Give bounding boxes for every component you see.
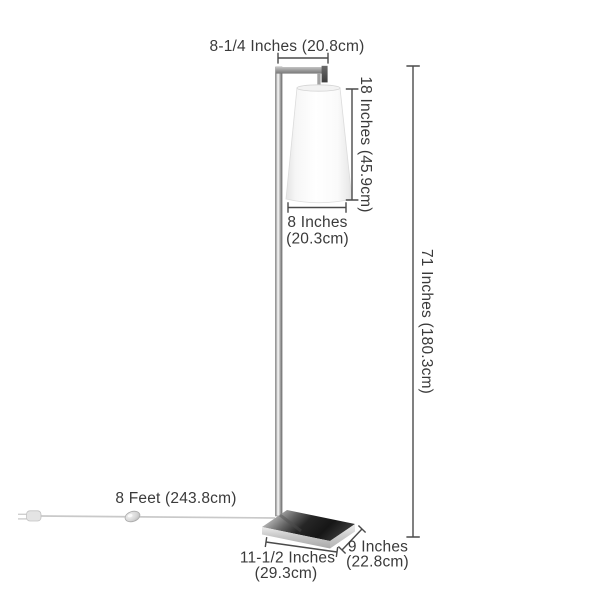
product-dimensions-diagram: 8-1/4 Inches (20.8cm) 18 Inches (45.9cm)… bbox=[0, 0, 600, 600]
label-base-depth-line2: (22.8cm) bbox=[346, 554, 409, 571]
lamp-shade bbox=[286, 85, 352, 203]
lamp-pole bbox=[276, 67, 283, 516]
power-plug bbox=[18, 511, 41, 521]
lamp-arm bbox=[276, 67, 328, 74]
dim-total-height bbox=[406, 66, 419, 537]
shade-top-rim bbox=[297, 85, 340, 91]
dim-shade-width bbox=[288, 202, 346, 213]
dimension-labels: 8-1/4 Inches (20.8cm) 18 Inches (45.9cm)… bbox=[115, 38, 435, 582]
label-base-width-line1: 11-1/2 Inches bbox=[240, 550, 335, 567]
label-total-height: 71 Inches (180.3cm) bbox=[418, 249, 435, 394]
label-shade-width-line2: (20.3cm) bbox=[286, 231, 349, 248]
label-base-width-line2: (29.3cm) bbox=[255, 565, 318, 582]
label-cord-length: 8 Feet (243.8cm) bbox=[115, 490, 236, 507]
label-shade-height: 18 Inches (45.9cm) bbox=[357, 76, 374, 212]
floor-lamp-illustration bbox=[18, 66, 355, 549]
lamp-arm-endcap bbox=[322, 66, 328, 83]
cord-inline-switch bbox=[124, 509, 142, 523]
label-shade-width-line1: 8 Inches bbox=[287, 214, 347, 231]
label-arm-width: 8-1/4 Inches (20.8cm) bbox=[210, 38, 365, 55]
power-cord bbox=[18, 509, 275, 523]
diagram-canvas: 8-1/4 Inches (20.8cm) 18 Inches (45.9cm)… bbox=[0, 0, 600, 600]
